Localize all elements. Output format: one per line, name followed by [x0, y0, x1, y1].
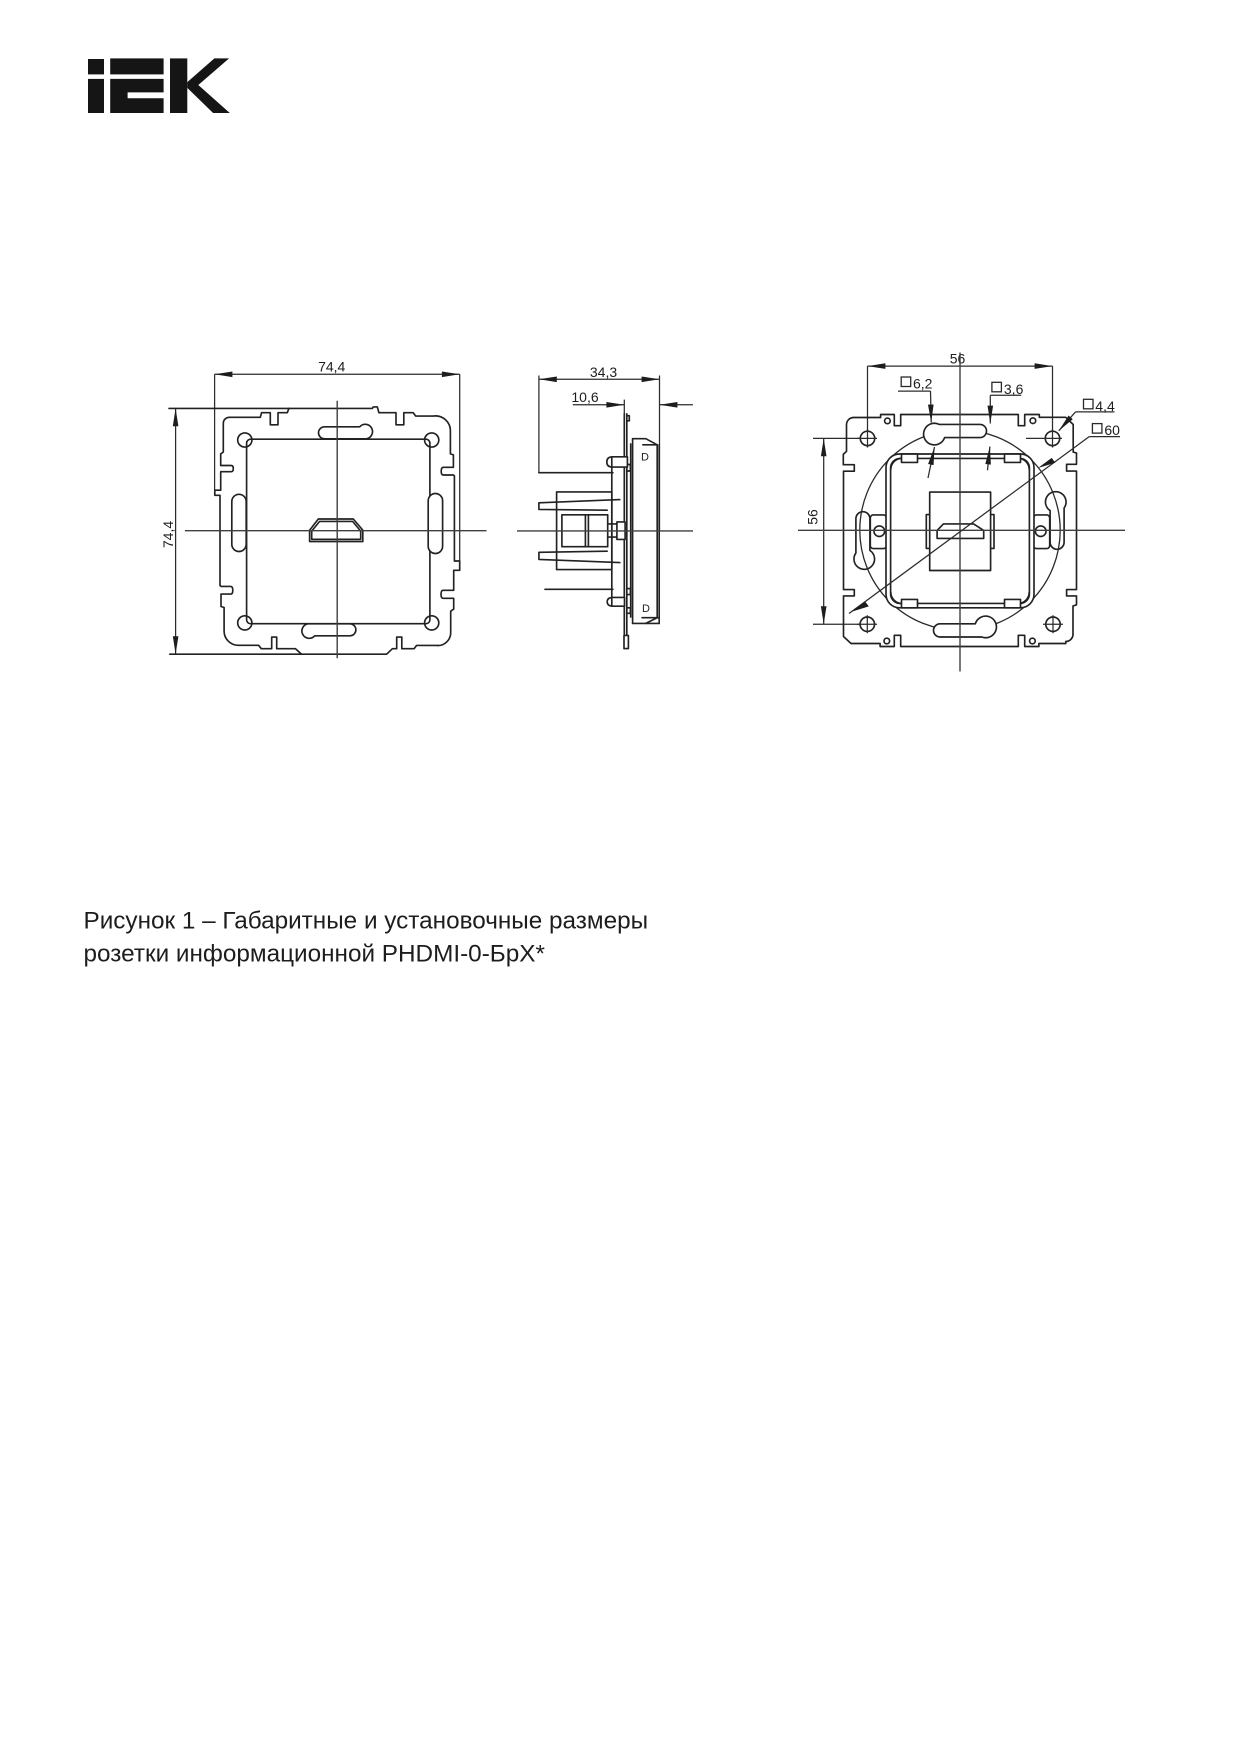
svg-text:60: 60 — [1104, 422, 1120, 438]
svg-text:74,4: 74,4 — [160, 521, 176, 548]
svg-text:34,3: 34,3 — [590, 364, 617, 380]
svg-text:10,6: 10,6 — [571, 389, 598, 405]
svg-text:6,2: 6,2 — [913, 376, 933, 392]
svg-text:56: 56 — [950, 351, 966, 367]
svg-text:74,4: 74,4 — [318, 359, 345, 375]
svg-text:3,6: 3,6 — [1004, 381, 1024, 397]
svg-text:56: 56 — [805, 509, 821, 525]
svg-text:D: D — [641, 452, 649, 464]
svg-text:розетки информационной PHDMI-0: розетки информационной PHDMI-0-БрХ* — [84, 941, 546, 968]
svg-text:Рисунок 1 – Габаритные и устан: Рисунок 1 – Габаритные и установочные ра… — [84, 908, 649, 935]
svg-text:D: D — [642, 603, 650, 615]
